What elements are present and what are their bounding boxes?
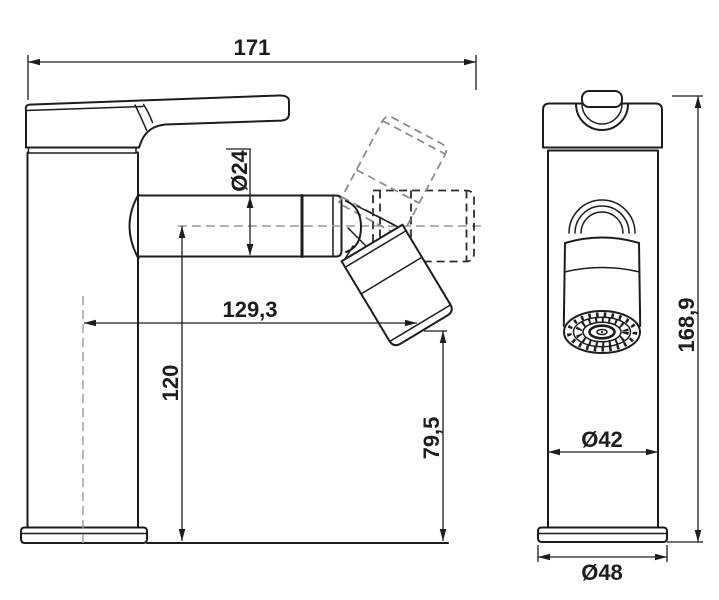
outlet-outline xyxy=(342,225,455,348)
spout-ghost-raised xyxy=(339,114,449,237)
base-flange xyxy=(21,528,147,544)
drawing-canvas: 171 Ø24 129,3 120 79,5 xyxy=(0,0,719,600)
dim-spout-diameter-label: Ø24 xyxy=(227,149,252,191)
dim-outlet-height: 79,5 xyxy=(419,331,447,541)
dim-spout-center-height: 120 xyxy=(158,226,183,541)
front-view: 168,9 Ø42 Ø48 xyxy=(538,91,703,585)
dim-outlet-height-label: 79,5 xyxy=(419,417,444,460)
dim-base-diameter-label: Ø48 xyxy=(581,560,623,585)
aerator-center-dot xyxy=(601,331,603,333)
dim-total-height-label: 168,9 xyxy=(674,297,699,352)
outlet-right-edge xyxy=(639,243,640,326)
base-flange xyxy=(538,528,667,543)
dim-body-diameter-label: Ø42 xyxy=(581,427,623,452)
dim-spout-center-height-label: 120 xyxy=(158,365,183,402)
top-cap xyxy=(543,104,662,148)
outlet-left-edge xyxy=(564,243,565,326)
dim-total-height: 168,9 xyxy=(667,96,703,542)
spout-angled xyxy=(342,225,455,348)
technical-drawing-page: 171 Ø24 129,3 120 79,5 xyxy=(0,0,719,600)
handle-silhouette xyxy=(26,95,289,147)
dim-spout-reach-label: 129,3 xyxy=(222,297,277,322)
ghost-tip-ring xyxy=(383,121,446,154)
side-view: 171 Ø24 129,3 120 79,5 xyxy=(21,35,483,545)
handle-lever xyxy=(26,95,289,147)
handle-end-tab xyxy=(582,91,622,107)
ghost-ring xyxy=(356,170,419,203)
ghost-outline xyxy=(339,114,449,237)
dim-overall-length: 171 xyxy=(28,35,476,100)
dim-overall-length-label: 171 xyxy=(234,35,271,60)
dim-base-diameter: Ø48 xyxy=(538,545,667,585)
